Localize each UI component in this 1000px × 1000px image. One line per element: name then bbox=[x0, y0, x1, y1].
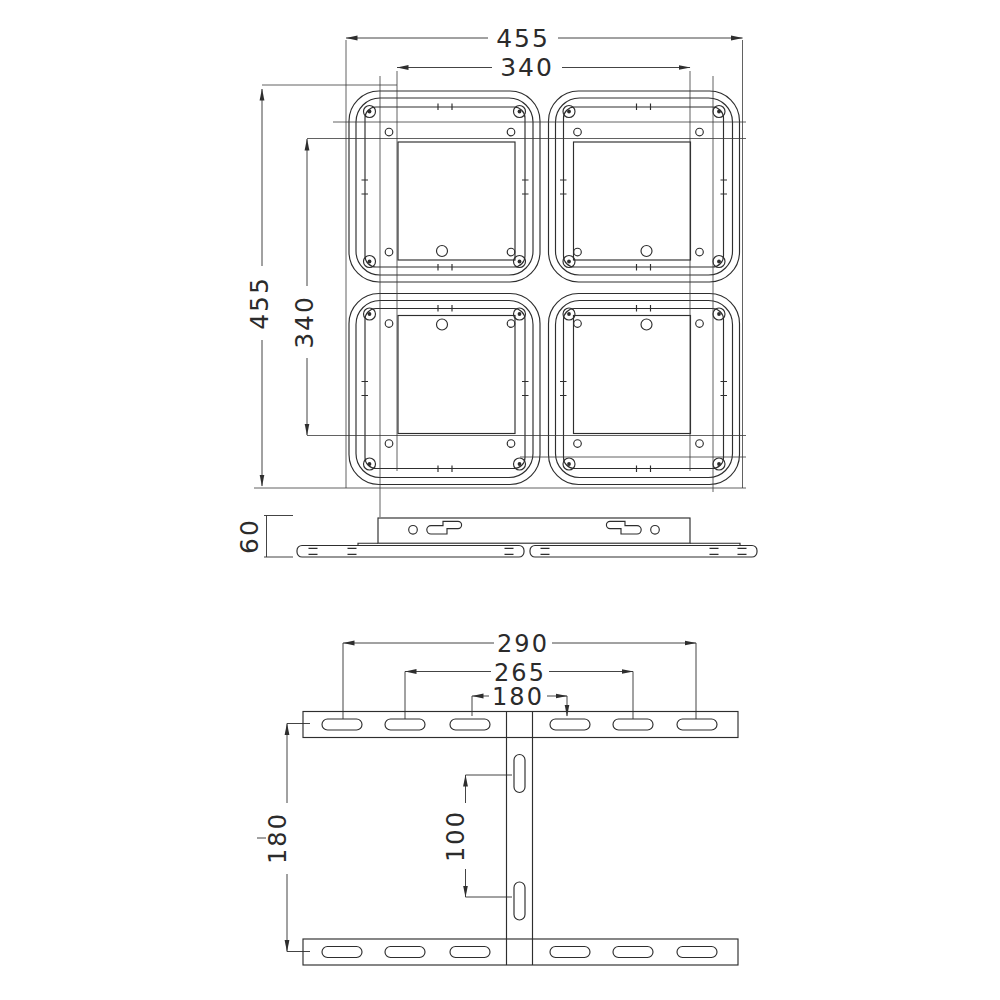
top-view: 455 340 455 340 bbox=[245, 24, 747, 518]
base-plate-right-half bbox=[530, 546, 757, 558]
center-column bbox=[507, 712, 533, 966]
dim-label-290: 290 bbox=[497, 630, 549, 658]
dim-label-60: 60 bbox=[235, 518, 264, 554]
keyhole-slot-left bbox=[427, 521, 462, 534]
dim-front-180-vertical: 180 bbox=[257, 724, 310, 952]
dim-label-180-horizontal: 180 bbox=[492, 683, 544, 711]
dim-top-inner-width: 340 bbox=[397, 53, 690, 82]
dim-label-180-vertical: 180 bbox=[264, 812, 292, 864]
dim-label-455-width: 455 bbox=[496, 24, 550, 53]
dim-top-outer-width: 455 bbox=[346, 24, 743, 53]
hanger-hole-right bbox=[651, 526, 660, 535]
bottom-rail bbox=[303, 939, 738, 965]
hidden-hole-ticks bbox=[309, 548, 747, 554]
keyhole-slot-right bbox=[606, 521, 641, 534]
dim-label-340-width: 340 bbox=[500, 53, 554, 82]
module-top-left bbox=[349, 91, 540, 282]
dim-label-455-height: 455 bbox=[245, 276, 274, 330]
base-plate-left-half bbox=[297, 546, 524, 558]
column-slots bbox=[514, 755, 525, 921]
bracket-profile bbox=[378, 518, 690, 543]
reference-lines bbox=[254, 40, 746, 517]
module-top-right bbox=[549, 91, 740, 282]
module-bottom-right bbox=[549, 294, 740, 485]
bottom-rail-slots bbox=[322, 947, 717, 958]
technical-drawing-canvas: 455 340 455 340 bbox=[0, 0, 1000, 1000]
bracket-front-view: 290 265 180 180 100 bbox=[257, 630, 738, 965]
dim-top-outer-height: 455 bbox=[245, 89, 274, 486]
dim-label-340-height: 340 bbox=[290, 295, 319, 349]
dim-label-100: 100 bbox=[442, 810, 470, 862]
dim-front-100: 100 bbox=[442, 775, 512, 897]
side-view: 60 bbox=[235, 516, 758, 558]
module-bottom-left bbox=[349, 294, 540, 485]
hanger-hole-left bbox=[409, 526, 418, 535]
dim-side-thickness: 60 bbox=[235, 516, 294, 558]
dim-top-inner-height: 340 bbox=[290, 139, 319, 435]
drawing-svg: 455 340 455 340 bbox=[0, 0, 1000, 1000]
top-rail bbox=[303, 712, 738, 738]
top-rail-slots bbox=[322, 719, 717, 730]
